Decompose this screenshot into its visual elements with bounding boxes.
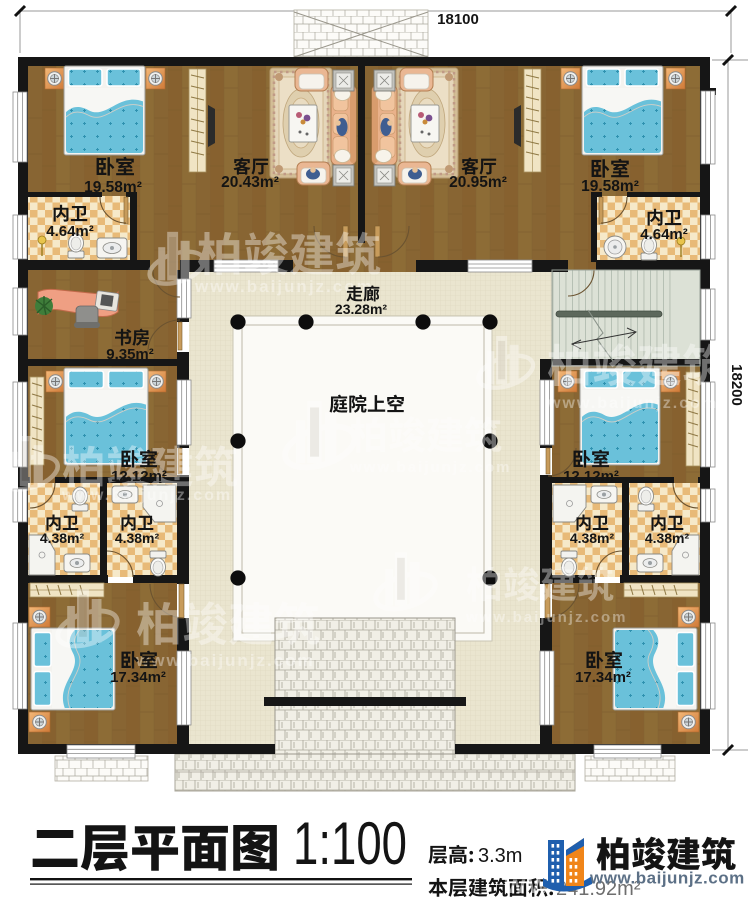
- svg-text:17.34m²: 17.34m²: [575, 669, 631, 686]
- svg-text:4.64m²: 4.64m²: [640, 226, 688, 243]
- svg-text:www.baijunjz.com: www.baijunjz.com: [589, 869, 745, 888]
- svg-text:3.3m: 3.3m: [478, 845, 522, 867]
- svg-text:1:100: 1:100: [293, 810, 407, 877]
- svg-text:19.58m²: 19.58m²: [581, 178, 639, 195]
- svg-text:19.58m²: 19.58m²: [84, 179, 142, 196]
- svg-text:18200: 18200: [728, 364, 745, 406]
- svg-text:4.38m²: 4.38m²: [570, 530, 615, 546]
- svg-text:4.38m²: 4.38m²: [115, 530, 160, 546]
- svg-text:www.baijunjz.com: www.baijunjz.com: [349, 459, 511, 476]
- svg-text:www.baijunjz.com: www.baijunjz.com: [547, 395, 718, 412]
- svg-text:4.38m²: 4.38m²: [645, 530, 690, 546]
- svg-text:23.28m²: 23.28m²: [335, 301, 387, 317]
- svg-text:www.baijunjz.com: www.baijunjz.com: [465, 609, 627, 626]
- svg-text:www: www: [504, 869, 575, 899]
- svg-text:17.34m²: 17.34m²: [110, 669, 166, 686]
- svg-text:4.64m²: 4.64m²: [46, 223, 94, 240]
- svg-text:18100: 18100: [437, 11, 479, 28]
- svg-text:20.43m²: 20.43m²: [221, 174, 279, 191]
- svg-text:12.12m²: 12.12m²: [563, 468, 619, 485]
- svg-text:4.38m²: 4.38m²: [40, 530, 85, 546]
- svg-text:9.35m²: 9.35m²: [106, 346, 154, 363]
- svg-text:12.12m²: 12.12m²: [111, 468, 167, 485]
- svg-text:20.95m²: 20.95m²: [449, 174, 507, 191]
- svg-text:www.baijunjz.com: www.baijunjz.com: [61, 487, 232, 504]
- svg-text:www.baijunjz.com: www.baijunjz.com: [135, 651, 315, 670]
- svg-text:www.baijunjz.com: www.baijunjz.com: [194, 277, 374, 296]
